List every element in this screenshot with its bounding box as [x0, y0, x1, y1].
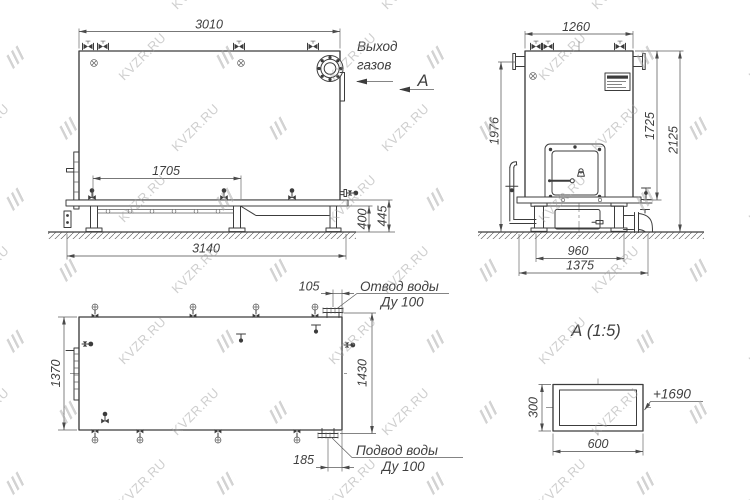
outlet-label-line2: Ду 100 — [379, 295, 424, 310]
water-outlet-flange — [323, 308, 343, 318]
outlet-label-line1: Отвод воды — [360, 279, 439, 294]
top-view: 1370 105 1430 185 Отвод воды Ду 100 Подв… — [49, 279, 463, 474]
top-ladder-bracket — [66, 348, 79, 400]
front-top-valves — [531, 41, 626, 50]
dim-1370-label: 1370 — [49, 360, 63, 388]
inlet-label-line2: Ду 100 — [380, 459, 425, 474]
dim-105: 105 — [299, 280, 354, 317]
view-a-label: А — [416, 72, 428, 90]
dim-1430-label: 1430 — [356, 359, 370, 387]
right-base-valve — [641, 188, 652, 203]
water-outlet-callout: Отвод воды Ду 100 — [337, 279, 449, 310]
detail-title: А (1:5) — [570, 322, 621, 340]
dim-3010-label: 3010 — [195, 18, 223, 32]
detail-outer-frame — [553, 385, 643, 432]
dim-1725-label: 1725 — [643, 112, 657, 140]
left-pipe-stub — [513, 54, 525, 70]
dim-105-label: 105 — [299, 280, 320, 294]
water-inlet-callout: Подвод воды Ду 100 — [331, 437, 463, 474]
dim-1725: 1725 — [635, 51, 684, 200]
dim-2125-label: 2125 — [667, 126, 681, 155]
flue-label-line1: Выход — [357, 39, 398, 54]
furnace-door — [545, 144, 605, 202]
flue-label-line2: газов — [357, 58, 391, 73]
flow-arrow-icon — [356, 79, 367, 85]
right-elbow-pipe — [624, 210, 653, 233]
dim-600: 600 — [553, 434, 643, 456]
dim-1976-label: 1976 — [488, 117, 502, 145]
ground-front — [478, 232, 704, 239]
dim-1705-label: 1705 — [152, 164, 180, 178]
dim-3010: 3010 — [79, 18, 340, 49]
dim-300-label: 300 — [527, 397, 541, 418]
elevation-callout: +1690 — [645, 387, 704, 411]
dim-960-label: 960 — [568, 244, 589, 258]
technical-drawing: 3010 1705 3140 400 445 Выход газов А — [0, 0, 750, 500]
nameplate — [605, 73, 630, 91]
support-frame — [64, 200, 348, 232]
front-view: 1260 1976 1725 2125 960 1375 — [478, 20, 704, 276]
side-right-valve — [340, 190, 358, 197]
dim-445-label: 445 — [376, 206, 390, 227]
gas-outlet-flange — [317, 56, 343, 82]
elevation-label: +1690 — [653, 387, 691, 402]
dim-2125: 2125 — [667, 51, 681, 232]
side-view: 3010 1705 3140 400 445 — [48, 18, 395, 260]
boiler-side-body — [79, 51, 340, 200]
dim-1375-label: 1375 — [566, 259, 594, 273]
ground-side — [48, 232, 356, 239]
dim-1976: 1976 — [488, 62, 517, 232]
side-top-valves — [83, 41, 319, 50]
dim-600-label: 600 — [588, 437, 609, 451]
view-arrow-icon — [399, 87, 410, 93]
drawing-sheet: 3010 1705 3140 400 445 Выход газов А — [0, 0, 750, 500]
dim-3140-label: 3140 — [192, 242, 220, 256]
detail-view-a: А (1:5) 300 600 +1690 — [527, 322, 704, 456]
dim-400-label: 400 — [356, 209, 370, 230]
right-pipe-stub — [633, 54, 645, 70]
dim-185-label: 185 — [293, 453, 314, 467]
flue-gas-callout: Выход газов — [356, 39, 398, 84]
boiler-top-body — [79, 317, 342, 430]
view-a-arrow: А — [399, 72, 434, 92]
dim-1260-label: 1260 — [562, 20, 590, 34]
inlet-label-line1: Подвод воды — [356, 443, 438, 458]
